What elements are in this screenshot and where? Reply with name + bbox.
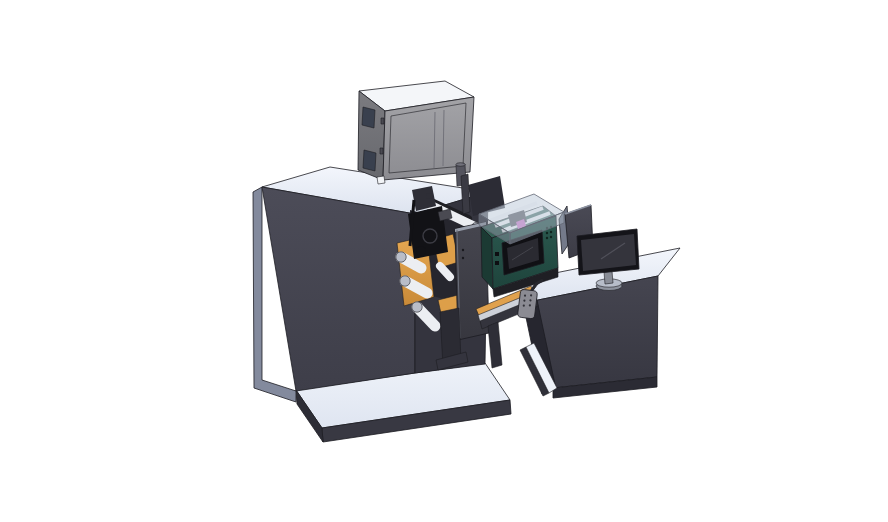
pendant-body: [517, 289, 537, 319]
vent-dot: [546, 237, 548, 239]
roller-end-cap: [400, 276, 410, 286]
panel-button: [495, 261, 499, 265]
cabinet-hinge: [380, 148, 383, 154]
machine-assembly-illustration: [0, 0, 888, 522]
panel-button: [495, 252, 499, 256]
door-hole: [462, 249, 464, 251]
printhead-cap: [426, 193, 433, 199]
cabinet-side-window: [362, 107, 375, 128]
cad-render-canvas: [0, 0, 888, 522]
filter-cap: [456, 163, 465, 167]
monitor-screen: [581, 234, 636, 271]
roller-end-cap: [412, 302, 422, 312]
cabinet-corner-label: [377, 176, 385, 184]
cabinet-side-window: [363, 150, 376, 171]
vent-dot: [550, 231, 552, 233]
conveyor-leg: [488, 322, 502, 368]
vent-dot: [550, 236, 552, 238]
vent-dot: [546, 232, 548, 234]
printhead-drum: [416, 246, 426, 256]
body-front-face: [262, 187, 415, 391]
printhead-drum: [423, 229, 437, 243]
roller-end-cap: [396, 252, 406, 262]
door-hole: [462, 257, 464, 259]
monitor-stand-neck: [604, 271, 613, 284]
cabinet-hinge: [381, 118, 384, 124]
